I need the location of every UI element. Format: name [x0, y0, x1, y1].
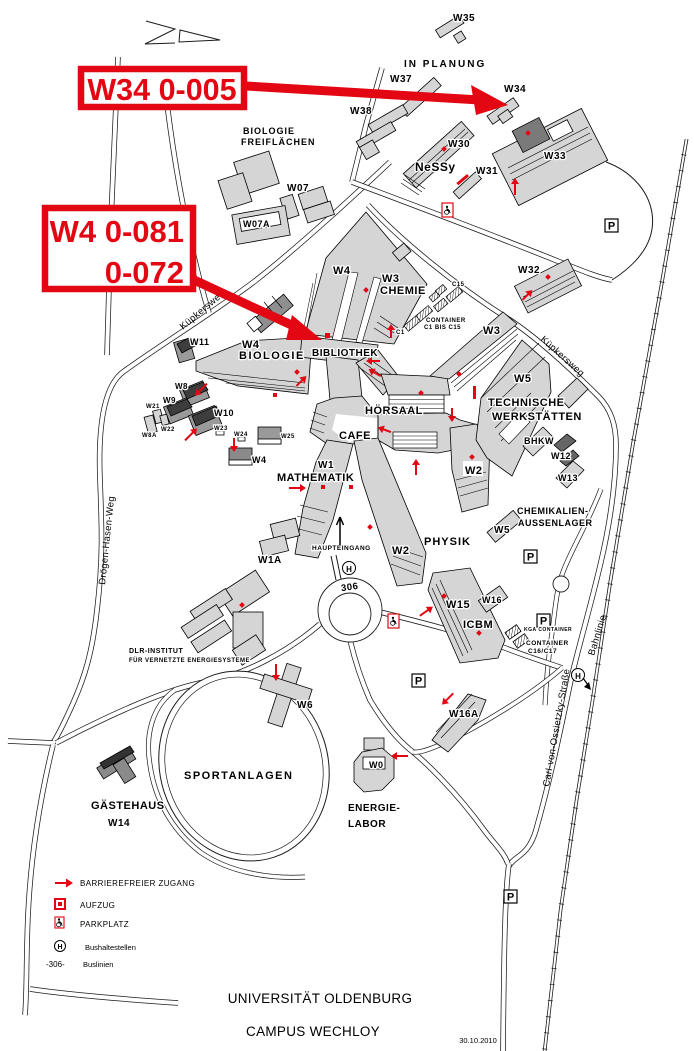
svg-text:P: P: [608, 221, 615, 233]
svg-text:W2: W2: [392, 545, 410, 557]
svg-text:UNIVERSITÄT OLDENBURG: UNIVERSITÄT OLDENBURG: [228, 991, 413, 1006]
svg-text:BHKW: BHKW: [524, 436, 554, 446]
svg-text:C1 BIS C15: C1 BIS C15: [424, 325, 461, 331]
svg-text:W34: W34: [504, 84, 526, 95]
svg-text:CHEMIE: CHEMIE: [380, 285, 426, 297]
svg-text:W0: W0: [369, 760, 384, 770]
svg-text:W25: W25: [281, 434, 295, 440]
svg-text:W9: W9: [163, 396, 176, 405]
svg-text:W30: W30: [448, 139, 470, 150]
svg-text:FÜR VERNETZTE ENERGIESYSTEME: FÜR VERNETZTE ENERGIESYSTEME: [129, 657, 250, 664]
svg-text:W14: W14: [108, 818, 130, 829]
svg-text:BIBLIOTHEK: BIBLIOTHEK: [312, 348, 378, 359]
svg-text:H: H: [575, 672, 581, 681]
svg-text:W24: W24: [234, 432, 248, 438]
svg-text:C16/C17: C16/C17: [528, 648, 557, 655]
svg-text:Buslinien: Buslinien: [83, 960, 113, 969]
svg-text:W32: W32: [518, 265, 540, 276]
svg-text:AUFZUG: AUFZUG: [80, 901, 115, 910]
svg-text:W21: W21: [146, 404, 160, 410]
svg-text:W4: W4: [333, 265, 351, 277]
svg-text:W8: W8: [175, 382, 188, 391]
svg-text:P: P: [540, 616, 547, 628]
svg-text:W38: W38: [350, 106, 372, 117]
svg-text:W5: W5: [514, 373, 532, 385]
svg-text:W3: W3: [483, 325, 501, 337]
svg-text:DLR-INSTITUT: DLR-INSTITUT: [129, 648, 183, 655]
svg-text:BIOLOGIE: BIOLOGIE: [243, 126, 295, 136]
svg-text:GÄSTEHAUS: GÄSTEHAUS: [91, 799, 165, 812]
svg-text:W5: W5: [494, 525, 510, 536]
svg-text:H: H: [346, 565, 352, 574]
svg-text:W11: W11: [190, 337, 210, 347]
svg-text:W10: W10: [214, 408, 234, 418]
svg-text:W33: W33: [544, 151, 566, 162]
svg-text:W16A: W16A: [449, 709, 479, 720]
svg-text:PARKPLATZ: PARKPLATZ: [80, 920, 129, 929]
svg-text:CONTAINER: CONTAINER: [526, 640, 569, 647]
svg-text:CAMPUS WECHLOY: CAMPUS WECHLOY: [246, 1024, 380, 1039]
svg-text:W35: W35: [453, 13, 475, 24]
svg-text:SPORTANLAGEN: SPORTANLAGEN: [184, 770, 293, 782]
svg-text:CHEMIKALIEN-: CHEMIKALIEN-: [517, 506, 589, 516]
svg-text:W12: W12: [551, 451, 571, 461]
svg-text:0-072: 0-072: [105, 255, 184, 290]
svg-text:Bushaltestellen: Bushaltestellen: [85, 943, 136, 952]
svg-text:BARRIEREFREIER ZUGANG: BARRIEREFREIER ZUGANG: [80, 879, 195, 888]
svg-text:WERKSTÄTTEN: WERKSTÄTTEN: [492, 410, 582, 423]
svg-text:-306-: -306-: [46, 960, 65, 969]
svg-text:W16: W16: [482, 595, 502, 605]
svg-text:W07A: W07A: [243, 219, 270, 229]
svg-text:HAUPTEINGANG: HAUPTEINGANG: [312, 545, 371, 552]
svg-text:W6: W6: [297, 700, 313, 711]
svg-text:KGA CONTAINER: KGA CONTAINER: [524, 627, 572, 633]
svg-text:W4: W4: [252, 455, 267, 465]
svg-text:FREIFLÄCHEN: FREIFLÄCHEN: [241, 137, 316, 147]
svg-text:W07: W07: [287, 183, 309, 194]
svg-text:ICBM: ICBM: [463, 619, 493, 631]
svg-text:30.10.2010: 30.10.2010: [459, 1036, 497, 1045]
svg-text:P: P: [415, 676, 422, 688]
svg-text:PHYSIK: PHYSIK: [424, 536, 471, 548]
svg-text:P: P: [507, 892, 514, 904]
svg-text:TECHNISCHE: TECHNISCHE: [488, 397, 565, 409]
svg-text:W31: W31: [476, 166, 498, 177]
svg-text:W37: W37: [390, 74, 412, 85]
svg-text:ENERGIE-: ENERGIE-: [348, 803, 400, 814]
svg-text:CONTAINER: CONTAINER: [426, 318, 466, 324]
svg-text:AUSSENLAGER: AUSSENLAGER: [518, 518, 593, 528]
svg-text:C1: C1: [396, 330, 405, 336]
svg-text:NeSSy: NeSSy: [415, 160, 456, 174]
svg-text:W13: W13: [558, 473, 578, 483]
svg-text:CAFE: CAFE: [339, 430, 371, 442]
svg-text:W15: W15: [446, 599, 470, 611]
svg-text:W4 0-081: W4 0-081: [50, 214, 184, 249]
svg-text:W1A: W1A: [258, 555, 282, 566]
svg-text:W22: W22: [161, 427, 175, 433]
svg-text:P: P: [527, 552, 534, 564]
svg-text:W3: W3: [382, 273, 400, 285]
svg-text:LABOR: LABOR: [348, 819, 386, 830]
svg-text:IN PLANUNG: IN PLANUNG: [404, 59, 486, 70]
svg-text:W1: W1: [318, 460, 334, 471]
svg-text:BIOLOGIE: BIOLOGIE: [239, 350, 305, 362]
svg-text:MATHEMATIK: MATHEMATIK: [277, 472, 354, 484]
svg-text:W34 0-005: W34 0-005: [87, 73, 236, 107]
svg-text:W23: W23: [214, 426, 228, 432]
svg-text:W2: W2: [465, 465, 483, 477]
svg-text:HÖRSAAL: HÖRSAAL: [365, 404, 423, 417]
svg-text:H: H: [57, 944, 62, 951]
svg-text:W8A: W8A: [142, 433, 157, 439]
